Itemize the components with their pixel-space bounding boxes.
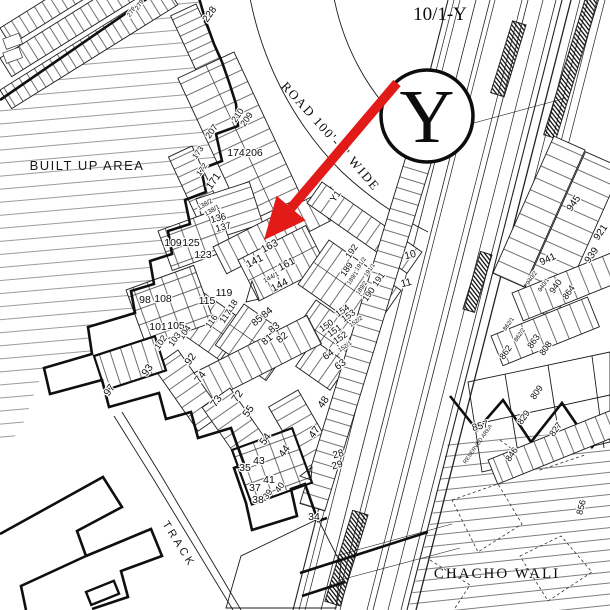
plot-number-206: 206 — [245, 147, 263, 159]
plot-number-37: 37 — [249, 482, 261, 494]
built-up-area-label: BUILT UP AREA — [30, 158, 145, 173]
plot-number-43: 43 — [253, 455, 265, 467]
plot-number-101: 101 — [149, 321, 167, 333]
plot-number-41: 41 — [263, 474, 275, 486]
page-title: 10/1-Y — [413, 4, 467, 25]
plot-number-35: 35 — [239, 462, 251, 474]
map-canvas: BUILT UP AREA ROAD 100'-0" WIDE TRACK CH… — [0, 0, 610, 610]
plot-number-123: 123 — [194, 249, 212, 261]
plot-number-34: 34 — [308, 511, 320, 523]
chacho-wali-label: CHACHO WALI — [434, 566, 560, 582]
scheme-map: BUILT UP AREA ROAD 100'-0" WIDE TRACK CH… — [0, 0, 610, 610]
y-marker-letter: Y — [400, 75, 455, 159]
plot-number-38: 38 — [252, 494, 264, 506]
plot-number-109: 109 — [164, 237, 182, 249]
plot-number-125: 125 — [182, 237, 200, 249]
plot-number-98: 98 — [139, 294, 151, 306]
plot-number-174: 174 — [227, 147, 245, 159]
plot-number-115: 115 — [199, 295, 216, 307]
plot-number-119: 119 — [216, 287, 233, 299]
plot-number-108: 108 — [154, 293, 172, 305]
